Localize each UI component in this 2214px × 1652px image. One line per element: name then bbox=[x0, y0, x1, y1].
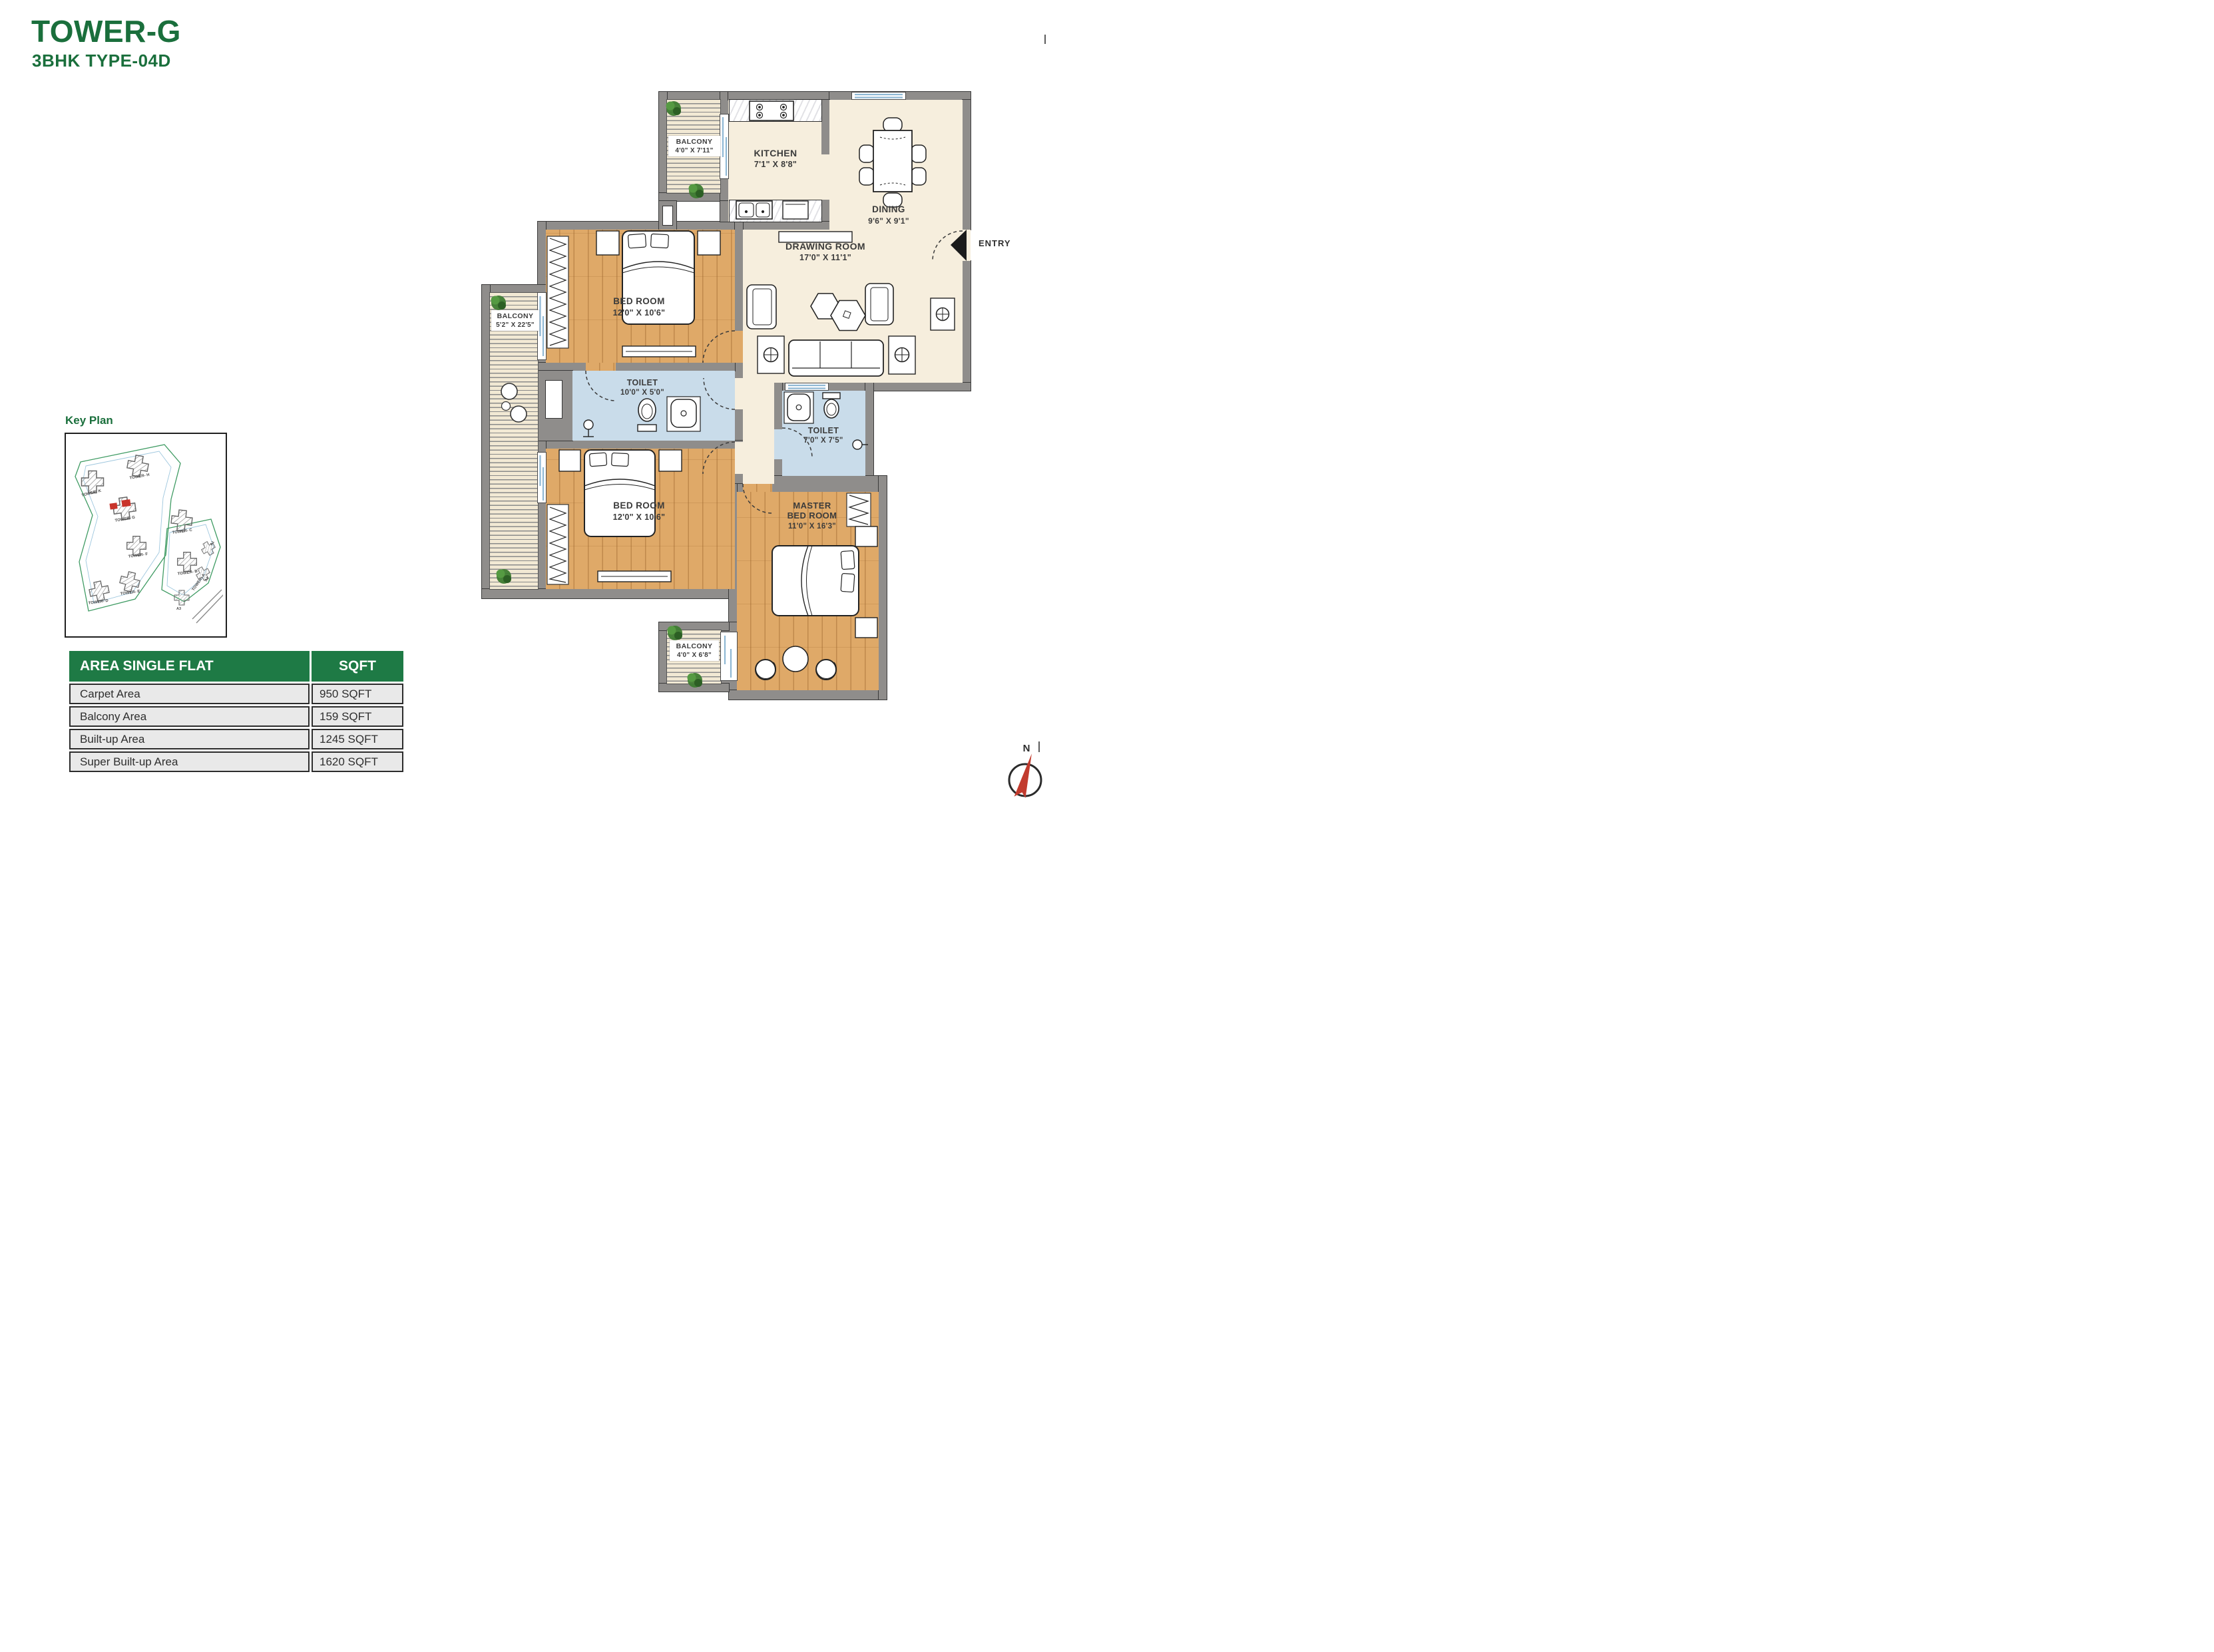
wall-segment bbox=[720, 201, 728, 222]
room-label-balcony-top: BALCONY 4'0" X 7'11" bbox=[668, 136, 720, 156]
wall-segment bbox=[482, 285, 490, 598]
table-row-value: 159 SQFT bbox=[312, 706, 403, 727]
room-dims: 4'0" X 7'11" bbox=[669, 147, 720, 154]
page-title: TOWER-G bbox=[31, 13, 181, 49]
page-corner-tick bbox=[1044, 35, 1046, 44]
room-dims: 17'0" X 11'1" bbox=[759, 253, 892, 262]
room-dims: 11'0" X 16'3" bbox=[784, 522, 840, 530]
tower-label: TOWER- G bbox=[114, 516, 135, 523]
north-label: N bbox=[1020, 743, 1033, 754]
shaft-vent bbox=[663, 206, 672, 225]
window-sliding bbox=[720, 114, 728, 178]
wall-segment bbox=[879, 476, 887, 700]
wall-segment bbox=[728, 92, 829, 100]
table-row-label: Built-up Area bbox=[69, 729, 310, 749]
wall-segment bbox=[482, 589, 743, 598]
room-dims: 4'0" X 6'8" bbox=[670, 652, 718, 659]
corridor-floor bbox=[743, 383, 774, 484]
north-tick bbox=[1038, 741, 1040, 752]
key-plan-title: Key Plan bbox=[65, 414, 113, 427]
room-name: BALCONY bbox=[492, 312, 539, 320]
room-name: MASTER BED ROOM bbox=[784, 501, 840, 521]
room-dims: 12'0" X 10'6" bbox=[572, 308, 706, 317]
wall-segment bbox=[963, 100, 971, 230]
wall-segment bbox=[482, 285, 546, 293]
wall-segment bbox=[659, 622, 729, 630]
room-name: TOILET bbox=[592, 378, 692, 387]
room-label-bedroom2: BED ROOM 12'0" X 10'6" bbox=[572, 501, 706, 522]
entry-label: ENTRY bbox=[979, 238, 1025, 248]
room-label-balcony-master: BALCONY 4'0" X 6'8" bbox=[670, 640, 719, 661]
door-opening bbox=[586, 363, 616, 371]
wall-segment bbox=[616, 363, 735, 371]
door-opening bbox=[743, 484, 772, 492]
wall-segment bbox=[659, 622, 667, 692]
window bbox=[852, 93, 905, 99]
door-opening bbox=[735, 331, 743, 363]
room-dims: 9'6" X 9'1" bbox=[845, 216, 932, 226]
floorplan-sheet: TOWER-G 3BHK TYPE-04D Key Plan bbox=[0, 0, 1107, 826]
room-name: BED ROOM bbox=[572, 296, 706, 307]
table-row-value: 1620 SQFT bbox=[312, 751, 403, 772]
wall-segment bbox=[729, 690, 887, 700]
room-name: BED ROOM bbox=[572, 501, 706, 511]
wall-segment bbox=[735, 363, 743, 378]
room-dims: 12'0" X 10'6" bbox=[572, 513, 706, 522]
key-plan-map: TOWER- K TOWER- H TOWER- G TOWER- F TOWE… bbox=[65, 433, 227, 638]
window-sliding bbox=[538, 453, 546, 503]
wall-segment bbox=[659, 193, 728, 201]
wall-segment bbox=[963, 261, 971, 391]
area-table: AREA SINGLE FLAT SQFT Carpet Area 950 SQ… bbox=[69, 651, 403, 772]
wall-segment bbox=[659, 92, 728, 100]
wall-segment bbox=[735, 409, 743, 442]
room-dims: 5'2" X 22'5" bbox=[492, 321, 539, 329]
key-plan-svg: TOWER- K TOWER- H TOWER- G TOWER- F TOWE… bbox=[66, 434, 223, 634]
room-dims: 10'0" X 5'0" bbox=[592, 389, 692, 397]
tower-label: A3 bbox=[176, 607, 181, 611]
room-label-toilet2: TOILET 7'0" X 7'5" bbox=[780, 426, 867, 445]
room-name: TOILET bbox=[780, 426, 867, 435]
table-row-value: 1245 SQFT bbox=[312, 729, 403, 749]
room-label-toilet1: TOILET 10'0" X 5'0" bbox=[592, 378, 692, 397]
kitchen-counter-sink bbox=[730, 200, 821, 222]
table-row-value: 950 SQFT bbox=[312, 684, 403, 704]
table-row-label: Carpet Area bbox=[69, 684, 310, 704]
wall-segment bbox=[772, 476, 887, 492]
room-name: KITCHEN bbox=[732, 148, 819, 158]
wall-segment bbox=[821, 100, 829, 154]
room-label-drawing-room: DRAWING ROOM 17'0" X 11'1" bbox=[759, 241, 892, 262]
wall-segment bbox=[821, 200, 829, 222]
wall-segment bbox=[538, 441, 743, 449]
wall-segment bbox=[735, 222, 743, 331]
wall-segment bbox=[538, 503, 546, 589]
floor-patch bbox=[821, 154, 829, 200]
area-table-header-unit: SQFT bbox=[312, 651, 403, 682]
entry-opening bbox=[963, 230, 971, 261]
table-row-label: Super Built-up Area bbox=[69, 751, 310, 772]
room-label-dining: DINING 9'6" X 9'1" bbox=[845, 204, 932, 226]
wall-segment bbox=[538, 441, 546, 453]
window bbox=[785, 383, 828, 390]
room-label-bedroom1: BED ROOM 12'0" X 10'6" bbox=[572, 296, 706, 317]
wall-segment bbox=[538, 363, 586, 371]
kitchen-counter-hob bbox=[730, 100, 821, 121]
room-dims: 7'1" X 8'8" bbox=[732, 160, 819, 169]
room-label-kitchen: KITCHEN 7'1" X 8'8" bbox=[732, 148, 819, 169]
north-compass-icon bbox=[1009, 752, 1041, 799]
wall-segment bbox=[720, 92, 728, 114]
room-name: DRAWING ROOM bbox=[759, 241, 892, 252]
door-opening bbox=[735, 442, 743, 474]
room-name: DINING bbox=[845, 204, 932, 215]
wall-segment bbox=[538, 222, 829, 230]
tower-label: TOWER- C bbox=[172, 528, 192, 535]
tower-label: TOWER- F bbox=[128, 552, 148, 559]
wall-segment bbox=[659, 92, 667, 201]
room-name: BALCONY bbox=[669, 138, 720, 146]
table-row-label: Balcony Area bbox=[69, 706, 310, 727]
area-table-header-name: AREA SINGLE FLAT bbox=[69, 651, 310, 682]
balcony-long-floor bbox=[490, 293, 538, 589]
shaft-vent bbox=[546, 381, 562, 418]
wall-segment bbox=[774, 383, 782, 429]
room-label-balcony-long: BALCONY 5'2" X 22'5" bbox=[491, 310, 539, 331]
tower-label: TOWER- B bbox=[177, 570, 198, 576]
page-subtitle: 3BHK TYPE-04D bbox=[32, 51, 171, 71]
room-label-master-bedroom: MASTER BED ROOM 11'0" X 16'3" bbox=[784, 501, 840, 530]
tower-label: TOWER- D bbox=[88, 599, 109, 606]
wall-segment bbox=[720, 178, 728, 201]
door-opening bbox=[735, 378, 743, 409]
wall-segment bbox=[659, 684, 729, 692]
room-dims: 7'0" X 7'5" bbox=[780, 437, 867, 445]
window-sliding bbox=[721, 632, 737, 680]
room-name: BALCONY bbox=[670, 642, 718, 650]
